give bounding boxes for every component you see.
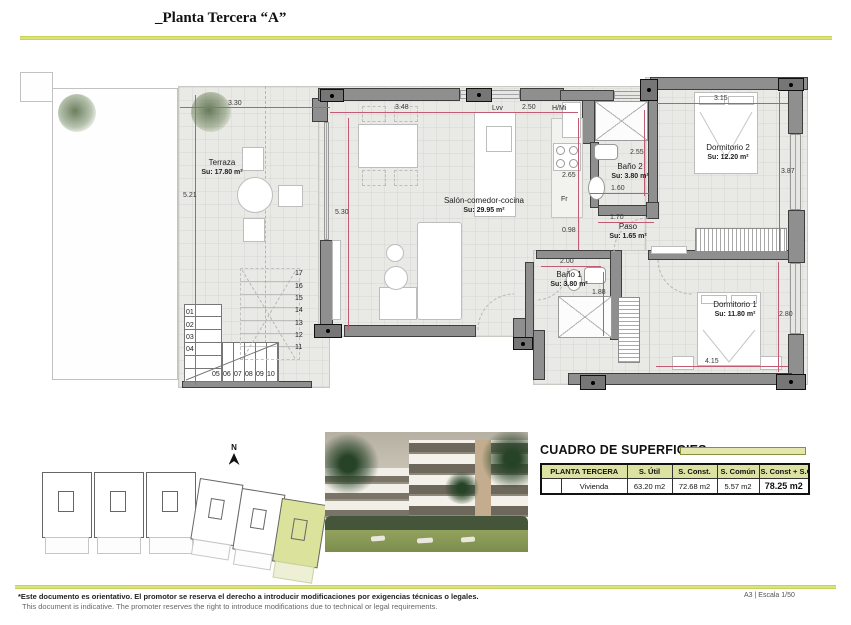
column-marker xyxy=(778,78,804,91)
wardrobe-dormitorio1 xyxy=(618,297,640,363)
col-planta: PLANTA TERCERA xyxy=(541,464,627,479)
burner xyxy=(556,146,565,155)
site-building-block xyxy=(146,472,196,538)
stairs-upper-dashed xyxy=(240,268,300,360)
stair-step-number: 02 xyxy=(186,322,194,329)
dim-bano1-height: 1.88 xyxy=(592,289,606,296)
wall xyxy=(598,205,650,216)
page-title: _Planta Tercera “A” xyxy=(155,10,286,27)
dim-hall-width: 0.98 xyxy=(562,227,576,234)
wall xyxy=(344,325,476,337)
dimension-line xyxy=(656,366,788,367)
surfaces-table: PLANTA TERCERA S. Útil S. Const. S. Comú… xyxy=(540,463,810,495)
dim-terraza-width: 3.30 xyxy=(228,100,242,107)
surfaces-header-row: PLANTA TERCERA S. Útil S. Const. S. Comú… xyxy=(541,464,809,479)
stair-step-number: 09 xyxy=(256,371,264,378)
surfaces-panel: CUADRO DE SUPERFICIES PLANTA TERCERA S. … xyxy=(540,443,808,503)
label-kitchen-island: Lvv xyxy=(492,105,503,112)
stair-step-number: 08 xyxy=(245,371,253,378)
wall xyxy=(648,100,658,208)
room-label-terraza: Terraza Su: 17.80 m² xyxy=(183,158,261,177)
surfaces-value-row: Vivienda 63.20 m2 72.68 m2 5.57 m2 78.25… xyxy=(541,479,809,495)
floorplan-sheet: _Planta Tercera “A” xyxy=(0,0,851,625)
wall xyxy=(582,100,595,144)
stair-step-number: 16 xyxy=(295,283,303,290)
island-sink xyxy=(486,126,512,152)
dimension-line xyxy=(348,118,349,330)
tree-icon xyxy=(191,92,231,132)
col-s-util: S. Útil xyxy=(627,464,672,479)
coffee-table xyxy=(379,287,417,320)
room-label-bano1: Baño 1 Su: 3.80 m² xyxy=(536,270,602,289)
stair-step-number: 17 xyxy=(295,270,303,277)
dim-salon-height: 5.30 xyxy=(335,209,349,216)
pouf xyxy=(386,244,404,262)
wall xyxy=(788,334,804,378)
sheet-scale-info: A3 | Escala 1/50 xyxy=(744,592,795,599)
shower-bano2 xyxy=(595,101,648,141)
stair-step-number: 04 xyxy=(186,346,194,353)
sideboard xyxy=(332,240,341,320)
wall xyxy=(533,330,545,380)
site-plan: N xyxy=(22,436,320,566)
value-s-const: 72.68 m2 xyxy=(672,479,717,495)
building-render-photo xyxy=(325,432,528,552)
lounger xyxy=(371,536,385,542)
tree-icon xyxy=(58,94,96,132)
column-marker xyxy=(776,374,806,390)
burner xyxy=(569,159,578,168)
wall xyxy=(788,210,805,263)
burner xyxy=(569,146,578,155)
wall xyxy=(788,90,803,134)
room-label-paso: Paso Su: 1.65 m² xyxy=(596,222,660,241)
palm-tree xyxy=(443,472,481,504)
column-marker xyxy=(513,337,533,350)
dim-dorm1-width: 4.15 xyxy=(705,358,719,365)
planter-box xyxy=(20,72,53,102)
stair-step-number: 14 xyxy=(295,307,303,314)
dimension-line xyxy=(779,92,780,252)
dim-dorm2-width: 3.15 xyxy=(714,95,728,102)
north-arrow-icon: N xyxy=(227,444,241,465)
surfaces-title-bar xyxy=(680,447,806,455)
dim-salon-width: 3.48 xyxy=(395,104,409,111)
value-s-comun: 5.57 m2 xyxy=(717,479,759,495)
header-accent-line xyxy=(20,36,832,40)
dim-bano1-width: 2.00 xyxy=(560,258,574,265)
label-laundry: H/Mi xyxy=(552,105,566,112)
dim-dorm1-height: 2.80 xyxy=(779,311,793,318)
dim-bano2-height: 2.55 xyxy=(630,149,644,156)
pouf xyxy=(384,266,408,290)
col-s-const: S. Const. xyxy=(672,464,717,479)
site-building-block xyxy=(94,472,144,538)
value-s-util: 63.20 m2 xyxy=(627,479,672,495)
wall xyxy=(646,202,659,219)
wall xyxy=(182,381,312,388)
dimension-line xyxy=(590,193,650,194)
wall xyxy=(525,262,534,340)
wall xyxy=(536,250,612,259)
stair-step-number: 15 xyxy=(295,295,303,302)
open-terrace-area xyxy=(52,88,178,380)
sofa xyxy=(417,222,462,320)
room-label-bano2: Baño 2 Su: 3.80 m² xyxy=(598,162,662,181)
dim-terraza-height: 5.21 xyxy=(183,192,197,199)
window xyxy=(790,263,801,334)
room-label-dormitorio2: Dormitorio 2 Su: 12.20 m² xyxy=(690,143,766,162)
dim-dorm2-height: 3.87 xyxy=(781,168,795,175)
dimension-line xyxy=(656,103,788,104)
stair-step-number: 11 xyxy=(295,344,302,351)
burner xyxy=(556,159,565,168)
stair-step-number: 13 xyxy=(295,320,303,327)
label-fridge: Fr xyxy=(561,196,568,203)
site-building-block-highlighted xyxy=(272,498,327,568)
stair-step-number: 03 xyxy=(186,334,194,341)
dining-chair xyxy=(362,170,386,186)
disclaimer-es: *Este documento es orientativo. El promo… xyxy=(18,592,479,601)
empty-cell xyxy=(541,479,561,495)
row-label: Vivienda xyxy=(561,479,627,495)
column-marker xyxy=(640,79,658,101)
nightstand xyxy=(672,356,694,370)
footer-accent-line xyxy=(15,585,836,589)
dining-chair xyxy=(362,106,386,122)
terrace-chair xyxy=(278,185,303,207)
room-label-dormitorio1: Dormitorio 1 Su: 11.80 m² xyxy=(696,300,774,319)
room-label-salon: Salón-comedor-cocina Su: 29.95 m² xyxy=(428,196,540,215)
dimension-line xyxy=(180,107,330,108)
wall xyxy=(520,88,564,101)
column-marker xyxy=(314,324,342,338)
dimension-line xyxy=(330,112,478,113)
dimension-line xyxy=(644,110,645,196)
dimension-line xyxy=(478,112,578,113)
window xyxy=(324,122,329,240)
dimension-line xyxy=(578,118,579,250)
dining-chair xyxy=(394,170,418,186)
stair-step-number: 10 xyxy=(267,371,275,378)
stair-step-number: 06 xyxy=(223,371,231,378)
terrace-table xyxy=(237,177,273,213)
col-s-comun: S. Común xyxy=(717,464,759,479)
value-s-total: 78.25 m2 xyxy=(759,479,809,495)
sink-bano2 xyxy=(594,144,618,160)
door-leaf xyxy=(651,246,687,254)
terrace-chair xyxy=(243,218,265,242)
dimension-line xyxy=(603,272,604,336)
dimension-line xyxy=(195,95,196,385)
dim-kitchen-width: 2.50 xyxy=(522,104,536,111)
col-s-total: S. Const + S.C xyxy=(759,464,809,479)
dim-paso-width: 1.70 xyxy=(610,214,624,221)
stair-step-number: 05 xyxy=(212,371,220,378)
site-building-block xyxy=(42,472,92,538)
dimension-line xyxy=(541,266,601,267)
lounger xyxy=(461,537,475,543)
dim-bano2-width: 1.60 xyxy=(611,185,625,192)
wardrobe-dormitorio2 xyxy=(695,228,787,252)
stair-step-number: 07 xyxy=(234,371,242,378)
disclaimer-en: This document is indicative. The promote… xyxy=(22,602,438,611)
stair-step-number: 01 xyxy=(186,309,194,316)
dining-table xyxy=(358,124,418,168)
column-marker xyxy=(320,89,344,102)
column-marker xyxy=(466,88,492,102)
dim-kitchen-height: 2.65 xyxy=(562,172,576,179)
column-marker xyxy=(580,375,606,390)
stair-step-number: 12 xyxy=(295,332,303,339)
